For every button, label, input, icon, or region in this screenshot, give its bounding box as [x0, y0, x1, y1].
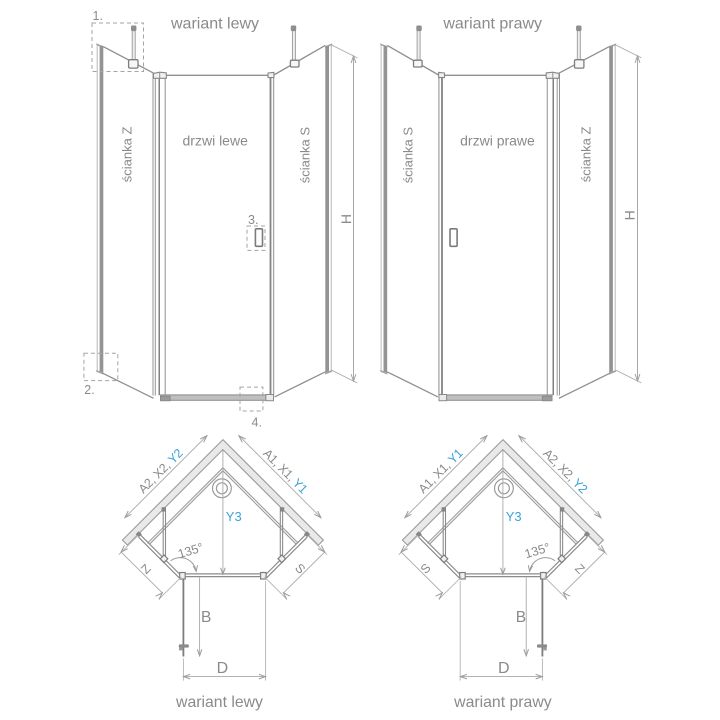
svg-text:Y3: Y3	[226, 509, 242, 524]
svg-text:B: B	[516, 609, 526, 626]
svg-text:ścianka Z: ścianka Z	[120, 127, 135, 183]
svg-text:1.: 1.	[93, 9, 103, 23]
svg-text:drzwi lewe: drzwi lewe	[183, 132, 249, 148]
svg-text:D: D	[217, 660, 229, 677]
svg-text:Y3: Y3	[506, 509, 522, 524]
svg-text:3.: 3.	[248, 213, 258, 227]
svg-text:ścianka S: ścianka S	[401, 127, 416, 184]
svg-text:D: D	[498, 660, 510, 677]
svg-text:H: H	[338, 214, 354, 224]
svg-text:ścianka S: ścianka S	[297, 127, 312, 184]
svg-text:H: H	[622, 210, 638, 220]
svg-text:wariant prawy: wariant prawy	[453, 694, 552, 711]
svg-text:drzwi prawe: drzwi prawe	[460, 132, 535, 148]
svg-text:wariant lewy: wariant lewy	[175, 694, 263, 711]
svg-text:wariant prawy: wariant prawy	[442, 15, 542, 32]
svg-text:ścianka Z: ścianka Z	[578, 127, 593, 183]
svg-text:B: B	[201, 609, 211, 626]
svg-text:2.: 2.	[84, 383, 94, 397]
svg-text:wariant lewy: wariant lewy	[170, 15, 259, 32]
svg-text:4.: 4.	[252, 416, 262, 430]
